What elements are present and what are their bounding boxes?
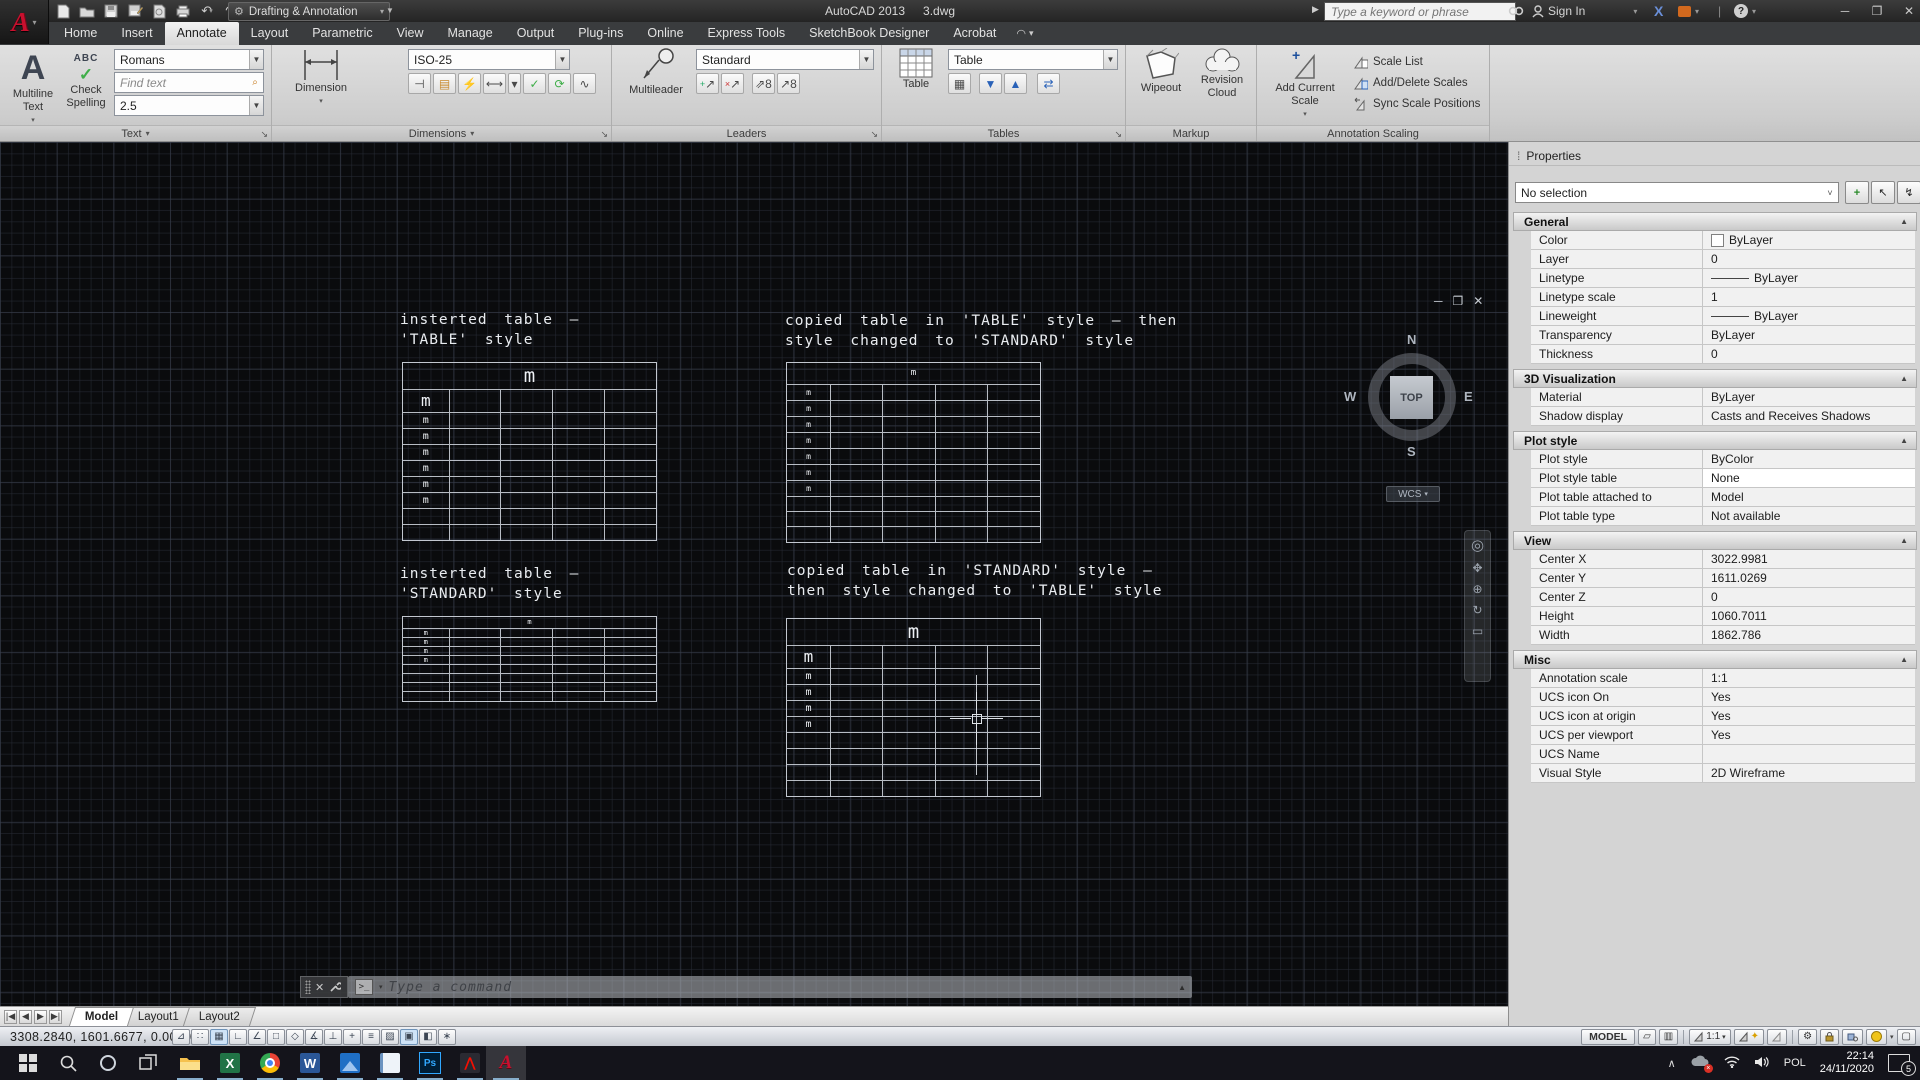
- property-row: Center Y1611.0269: [1531, 569, 1915, 588]
- object-snap-3d-toggle[interactable]: ◇: [286, 1029, 304, 1045]
- autoscale-button[interactable]: [1767, 1029, 1787, 1045]
- tab-online[interactable]: Online: [635, 22, 695, 45]
- layout-nav-buttons: |◀ ◀ ▶ ▶|: [0, 1010, 66, 1024]
- table-cell: [449, 674, 501, 682]
- add-leader-icon[interactable]: +↗: [696, 73, 719, 94]
- property-value[interactable]: ByLayer: [1703, 388, 1915, 406]
- dynamic-ucs-toggle[interactable]: ⊥: [324, 1029, 342, 1045]
- search-go-icon[interactable]: [1508, 0, 1524, 22]
- multiline-text-button[interactable]: A Multiline Text▾: [8, 48, 58, 127]
- object-snap-toggle[interactable]: □: [267, 1029, 285, 1045]
- command-line-grip[interactable]: ✕: [300, 976, 348, 998]
- property-value[interactable]: 0: [1703, 588, 1915, 606]
- property-row: Width1862.786: [1531, 626, 1915, 645]
- table-cell: [935, 481, 987, 496]
- workspace-gear-icon[interactable]: ⚙: [1798, 1029, 1817, 1045]
- clock[interactable]: 22:1424/11/2020: [1820, 1050, 1874, 1076]
- table-row: m: [787, 645, 1040, 668]
- table-annotation-text: insterted table –'TABLE' style: [400, 310, 579, 350]
- wipeout-button[interactable]: Wipeout: [1134, 48, 1188, 95]
- table-cell: [935, 385, 987, 400]
- text-style-combo[interactable]: Romans▼: [114, 49, 264, 70]
- prev-layout-icon[interactable]: ◀: [19, 1010, 32, 1024]
- property-value[interactable]: Not available: [1703, 507, 1915, 525]
- property-value[interactable]: ByLayer: [1703, 231, 1915, 249]
- property-value[interactable]: 1060.7011: [1703, 607, 1915, 625]
- property-value[interactable]: Casts and Receives Shadows: [1703, 407, 1915, 425]
- find-text-field[interactable]: Find text ⌕: [114, 72, 264, 93]
- table-cell: [449, 683, 501, 691]
- inserted-table-standard-style[interactable]: mmmmm: [402, 616, 657, 702]
- table-cell: [935, 717, 987, 732]
- section-header-general[interactable]: General▲: [1513, 212, 1917, 231]
- application-menu-button[interactable]: A▾: [0, 0, 49, 44]
- wipeout-label: Wipeout: [1141, 82, 1181, 95]
- viewcube-north[interactable]: N: [1407, 332, 1416, 347]
- update-dim-icon[interactable]: ⟳: [548, 73, 571, 94]
- collapse-icon[interactable]: ▲: [1900, 536, 1908, 545]
- excel-taskbar-icon[interactable]: X: [210, 1046, 250, 1080]
- table-cell: [882, 512, 934, 526]
- window-title: AutoCAD 20133.dwg: [700, 0, 1080, 22]
- svg-text:+: +: [1292, 48, 1300, 63]
- panel-title-markup[interactable]: Markup: [1126, 125, 1256, 141]
- panel-title-dimensions[interactable]: Dimensions▾↘: [272, 125, 611, 141]
- volume-icon[interactable]: [1754, 1056, 1770, 1071]
- wcs-menu[interactable]: WCS▾: [1386, 486, 1440, 502]
- table-tools: ▦ ▼ ▲ ⇄: [948, 73, 1060, 94]
- save-icon[interactable]: [102, 3, 120, 19]
- table-cell: [830, 465, 882, 480]
- photoshop-taskbar-icon[interactable]: Ps: [410, 1046, 450, 1080]
- table-cell: [882, 481, 934, 496]
- table-cell: [935, 781, 987, 796]
- tab-annotate[interactable]: Annotate: [165, 22, 239, 45]
- viewport-window-buttons: ─ ❐ ✕: [1434, 294, 1483, 308]
- dialog-launcher-icon[interactable]: ↘: [1114, 129, 1122, 140]
- help-icon[interactable]: ?▾: [1734, 0, 1756, 22]
- revision-cloud-icon: [1203, 48, 1241, 74]
- table-row: m: [403, 637, 656, 646]
- table-cell: [987, 385, 1039, 400]
- sign-in-button[interactable]: Sign In ▾: [1532, 0, 1637, 22]
- scale-list-button[interactable]: Scale List: [1353, 52, 1480, 72]
- panel-title-annotation-scaling[interactable]: Annotation Scaling: [1257, 125, 1489, 141]
- reassociate-icon[interactable]: ✓: [523, 73, 546, 94]
- table-row: [403, 691, 656, 701]
- multileader-button[interactable]: Multileader: [624, 48, 688, 97]
- viewcube-south[interactable]: S: [1407, 444, 1416, 459]
- search-taskbar-icon[interactable]: [48, 1046, 88, 1080]
- toggle-pickadd-button[interactable]: +: [1845, 181, 1869, 204]
- table-cell: [787, 527, 830, 542]
- chevron-down-icon[interactable]: ▾: [508, 73, 521, 94]
- property-label: UCS icon at origin: [1531, 707, 1703, 725]
- revision-cloud-button[interactable]: Revision Cloud: [1192, 48, 1252, 100]
- property-row: Height1060.7011: [1531, 607, 1915, 626]
- adjust-spacing-icon[interactable]: ▤: [433, 73, 456, 94]
- annotation-monitor-toggle[interactable]: ∗: [438, 1029, 456, 1045]
- property-value[interactable]: Yes: [1703, 707, 1915, 725]
- quick-properties-toggle[interactable]: ▣: [400, 1029, 418, 1045]
- table-style-value: Table: [949, 53, 1103, 67]
- mtext-icon: A: [21, 48, 46, 88]
- close-button[interactable]: ✕: [1902, 4, 1916, 18]
- tab-output[interactable]: Output: [505, 22, 567, 45]
- start-taskbar-icon[interactable]: [8, 1046, 48, 1080]
- property-value[interactable]: ByLayer: [1703, 307, 1915, 325]
- multileader-style-combo[interactable]: Standard▼: [696, 49, 874, 70]
- table-cell: [987, 465, 1039, 480]
- isolate-objects-icon[interactable]: [1866, 1029, 1887, 1045]
- ortho-mode-toggle[interactable]: ∟: [229, 1029, 247, 1045]
- tray-expand-icon[interactable]: ∧: [1668, 1057, 1676, 1070]
- property-value[interactable]: Yes: [1703, 726, 1915, 744]
- quick-dim-icon[interactable]: ⚡: [458, 73, 481, 94]
- command-placeholder: Type a command: [389, 980, 513, 995]
- panel-title-text[interactable]: Text▾↘: [0, 125, 271, 141]
- dynamic-input-toggle[interactable]: +: [343, 1029, 361, 1045]
- language-indicator[interactable]: POL: [1784, 1057, 1806, 1069]
- first-layout-icon[interactable]: |◀: [4, 1010, 17, 1024]
- zoom-icon[interactable]: ⊕: [1472, 582, 1482, 596]
- table-cell: [987, 497, 1039, 511]
- table-cell: [882, 433, 934, 448]
- acrobat-taskbar-icon[interactable]: ⋀: [450, 1046, 490, 1080]
- table-cell: [604, 692, 656, 701]
- dimension-button[interactable]: Dimension ▾: [288, 48, 354, 108]
- table-title-cell: m: [787, 619, 1040, 645]
- collapse-icon[interactable]: ▲: [1900, 374, 1908, 383]
- app-title: AutoCAD 2013: [825, 4, 905, 18]
- add-current-scale-label: Add Current Scale: [1265, 82, 1345, 108]
- chrome-taskbar-icon[interactable]: [250, 1046, 290, 1080]
- align-leaders-icon[interactable]: ⇗8: [752, 73, 775, 94]
- last-layout-icon[interactable]: ▶|: [49, 1010, 62, 1024]
- annotation-visibility-button[interactable]: ✦: [1734, 1029, 1764, 1045]
- table-row: m: [403, 476, 656, 492]
- jog-line-icon[interactable]: ∿: [573, 73, 596, 94]
- snap-mode-toggle[interactable]: ∷: [191, 1029, 209, 1045]
- tab-parametric[interactable]: Parametric: [300, 22, 384, 45]
- upload-table-icon[interactable]: ▲: [1004, 73, 1027, 94]
- table-cell: [604, 461, 656, 476]
- task-view-taskbar-icon[interactable]: [128, 1046, 168, 1080]
- table-cell: [830, 765, 882, 780]
- chevron-down-icon: ▾: [1303, 108, 1307, 121]
- remove-leader-icon[interactable]: ×↗: [721, 73, 744, 94]
- table-cell: [935, 765, 987, 780]
- sync-scale-positions-button[interactable]: Sync Scale Positions: [1353, 94, 1480, 114]
- viewport-minimize-icon[interactable]: ─: [1434, 294, 1443, 308]
- collect-leaders-icon[interactable]: ↗8: [777, 73, 800, 94]
- command-history-icon[interactable]: ▲: [1178, 983, 1186, 992]
- annotation-scale-icon: [1694, 1031, 1704, 1042]
- autocad-taskbar-icon[interactable]: A: [486, 1046, 526, 1080]
- table-cell: [935, 701, 987, 716]
- drawing-area[interactable]: ─ ❐ ✕ N W E S TOP WCS▾ ◎ ✥ ⊕ ↻ ▭ Y X: [0, 142, 1508, 1006]
- property-label: UCS Name: [1531, 745, 1703, 763]
- cortana-taskbar-icon[interactable]: [88, 1046, 128, 1080]
- new-file-icon[interactable]: [54, 3, 72, 19]
- hardware-accel-icon[interactable]: [1842, 1029, 1863, 1045]
- open-file-icon[interactable]: [78, 3, 96, 19]
- customize-wrench-icon[interactable]: [328, 981, 341, 994]
- selection-type-combo[interactable]: No selection ˅: [1515, 182, 1839, 203]
- property-value[interactable]: 3022.9981: [1703, 550, 1915, 568]
- showmotion-icon[interactable]: ▭: [1472, 624, 1483, 638]
- table-cell: [552, 683, 604, 691]
- table-cell: [830, 433, 882, 448]
- table-annotation-text: copied table in 'STANDARD' style –then s…: [787, 561, 1163, 601]
- transparency-toggle[interactable]: ▨: [381, 1029, 399, 1045]
- property-value[interactable]: 0: [1703, 345, 1915, 363]
- table-row: [787, 732, 1040, 748]
- undo-icon[interactable]: ↶▾: [198, 3, 216, 19]
- chevron-down-icon[interactable]: ▾: [379, 983, 383, 991]
- add-delete-scales-button[interactable]: Add/Delete Scales: [1353, 73, 1480, 93]
- separator: |: [1718, 0, 1721, 22]
- property-value[interactable]: None: [1703, 469, 1915, 487]
- table-cell: m: [787, 481, 830, 496]
- pan-icon[interactable]: ✥: [1472, 561, 1482, 575]
- drawing-quickview-icon[interactable]: ▥: [1659, 1029, 1678, 1045]
- table-cell: [830, 401, 882, 416]
- layout-tab-label: Layout2: [199, 1008, 240, 1026]
- table-cell-style-icon[interactable]: ▦: [948, 73, 971, 94]
- wifi-icon[interactable]: [1724, 1056, 1740, 1071]
- property-row: Annotation scale1:1: [1531, 669, 1915, 688]
- section-header-3d-visualization[interactable]: 3D Visualization▲: [1513, 369, 1917, 388]
- restore-button[interactable]: ❐: [1870, 4, 1884, 18]
- command-line[interactable]: ✕ >_ ▾ Type a command ▲: [300, 976, 1192, 998]
- section-header-plot-style[interactable]: Plot style▲: [1513, 431, 1917, 450]
- viewcube-east[interactable]: E: [1464, 389, 1473, 404]
- table-cell: [604, 656, 656, 664]
- photos-taskbar-icon[interactable]: [330, 1046, 370, 1080]
- ribbon-options-button[interactable]: ◠▾: [1008, 22, 1041, 45]
- close-icon[interactable]: ✕: [315, 981, 324, 994]
- tab-sketchbook-designer[interactable]: SketchBook Designer: [797, 22, 941, 45]
- tab-express-tools[interactable]: Express Tools: [696, 22, 798, 45]
- command-input[interactable]: >_ ▾ Type a command ▲: [348, 976, 1192, 998]
- notepad-taskbar-icon[interactable]: [370, 1046, 410, 1080]
- table-cell: [449, 656, 501, 664]
- autocad-window: ↶▾ ↷▾ ⚙ Drafting & Annotation ▾ ▼ AutoCA…: [0, 0, 1920, 1080]
- table-cell: [882, 669, 934, 684]
- toolbar-lock-icon[interactable]: [1820, 1029, 1839, 1045]
- table-annotation-text: insterted table –'STANDARD' style: [400, 564, 579, 604]
- property-row: LineweightByLayer: [1531, 307, 1915, 326]
- property-row: Linetype scale1: [1531, 288, 1915, 307]
- add-current-scale-button[interactable]: + Add Current Scale ▾: [1267, 48, 1343, 121]
- polar-tracking-toggle[interactable]: ∠: [248, 1029, 266, 1045]
- palette-grip-icon: ⁞: [1517, 149, 1520, 163]
- table-row: [403, 524, 656, 540]
- action-center-icon[interactable]: 5: [1888, 1054, 1910, 1072]
- object-snap-tracking-toggle[interactable]: ∡: [305, 1029, 323, 1045]
- find-text-placeholder: Find text: [115, 76, 247, 90]
- qat-customize-icon[interactable]: ▼: [386, 6, 394, 15]
- table-title-cell: m: [403, 363, 656, 389]
- table-cell: [830, 527, 882, 542]
- property-value[interactable]: Model: [1703, 488, 1915, 506]
- property-value[interactable]: Yes: [1703, 688, 1915, 706]
- dialog-launcher-icon[interactable]: ↘: [260, 129, 268, 140]
- property-value[interactable]: ByColor: [1703, 450, 1915, 468]
- panel-title-leaders[interactable]: Leaders↘: [612, 125, 881, 141]
- table-cell: [882, 781, 934, 796]
- tab-view[interactable]: View: [385, 22, 436, 45]
- table-cell: [604, 390, 656, 412]
- table-cell: m: [787, 449, 830, 464]
- table-cell: [604, 647, 656, 655]
- infer-constraints-toggle[interactable]: ⊿: [172, 1029, 190, 1045]
- collapse-icon[interactable]: ▲: [1900, 655, 1908, 664]
- model-space-button[interactable]: MODEL: [1581, 1029, 1635, 1045]
- save-as-icon[interactable]: [126, 3, 144, 19]
- tab-manage[interactable]: Manage: [436, 22, 505, 45]
- copied-table-table-style[interactable]: mmmmmm: [786, 618, 1041, 797]
- inserted-table-table-style[interactable]: mmmmmmmm: [402, 362, 657, 541]
- table-row: m: [787, 384, 1040, 400]
- viewport-close-icon[interactable]: ✕: [1473, 294, 1483, 308]
- dimension-style-combo[interactable]: ISO-25▼: [408, 49, 570, 70]
- layout-tab-model[interactable]: Model: [69, 1007, 134, 1026]
- navigation-wheel-icon[interactable]: ◎: [1471, 536, 1484, 554]
- layout-quickview-icon[interactable]: ▱: [1638, 1029, 1656, 1045]
- ribbon-tabs: HomeInsertAnnotateLayoutParametricViewMa…: [52, 22, 1008, 45]
- table-row: [787, 764, 1040, 780]
- minimize-button[interactable]: ─: [1838, 4, 1852, 18]
- property-row: Visual Style2D Wireframe: [1531, 764, 1915, 783]
- section-header-misc[interactable]: Misc▲: [1513, 650, 1917, 669]
- table-cell: m: [787, 701, 830, 716]
- annotation-scale-button[interactable]: 1:1▾: [1689, 1029, 1730, 1045]
- table-cell: [830, 685, 882, 700]
- table-button[interactable]: Table: [892, 48, 940, 91]
- property-label: Annotation scale: [1531, 669, 1703, 687]
- layout-tab-layout2[interactable]: Layout2: [183, 1007, 256, 1026]
- table-cell: [500, 665, 552, 673]
- exchange-apps-icon[interactable]: X: [1654, 0, 1663, 22]
- table-cell: [987, 449, 1039, 464]
- property-label: Material: [1531, 388, 1703, 406]
- property-value[interactable]: ByLayer: [1703, 326, 1915, 344]
- table-cell: [935, 497, 987, 511]
- tab-home[interactable]: Home: [52, 22, 109, 45]
- property-label: Plot table attached to: [1531, 488, 1703, 506]
- property-label: Width: [1531, 626, 1703, 644]
- property-value[interactable]: 0: [1703, 250, 1915, 268]
- file-explorer-taskbar-icon[interactable]: [170, 1046, 210, 1080]
- table-cell: [500, 509, 552, 524]
- color-swatch: [1711, 234, 1724, 247]
- export-table-down-icon[interactable]: ▼: [979, 73, 1002, 94]
- viewcube-top-face[interactable]: TOP: [1390, 376, 1433, 419]
- panel-title-tables[interactable]: Tables↘: [882, 125, 1125, 141]
- property-value[interactable]: 1611.0269: [1703, 569, 1915, 587]
- quick-select-button[interactable]: ↯: [1897, 181, 1920, 204]
- word-taskbar-icon[interactable]: W: [290, 1046, 330, 1080]
- dialog-launcher-icon[interactable]: ↘: [600, 129, 608, 140]
- table-cell: [787, 733, 830, 748]
- plot-preview-icon[interactable]: [150, 3, 168, 19]
- next-layout-icon[interactable]: ▶: [34, 1010, 47, 1024]
- viewcube-west[interactable]: W: [1344, 389, 1356, 404]
- table-cell: m: [787, 417, 830, 432]
- table-cell: [935, 449, 987, 464]
- chevron-down-icon: ˅: [1822, 188, 1838, 198]
- property-value[interactable]: 1862.786: [1703, 626, 1915, 644]
- viewport-restore-icon[interactable]: ❐: [1453, 294, 1464, 308]
- text-height-combo[interactable]: 2.5▼: [114, 95, 264, 116]
- selection-cycling-toggle[interactable]: ◧: [419, 1029, 437, 1045]
- property-value[interactable]: 1: [1703, 288, 1915, 306]
- section-body-3d-visualization: MaterialByLayerShadow displayCasts and R…: [1531, 388, 1915, 426]
- property-value[interactable]: ByLayer: [1703, 269, 1915, 287]
- property-value[interactable]: 2D Wireframe: [1703, 764, 1915, 782]
- table-cell: [552, 461, 604, 476]
- onedrive-icon[interactable]: ×: [1690, 1055, 1710, 1071]
- chevron-down-icon[interactable]: ▾: [1890, 1033, 1894, 1041]
- table-row: m: [787, 416, 1040, 432]
- break-dimension-icon[interactable]: ⊣: [408, 73, 431, 94]
- continue-dim-icon[interactable]: ⟷: [483, 73, 506, 94]
- collapse-icon[interactable]: ▲: [1900, 217, 1908, 226]
- lineweight-toggle[interactable]: ≡: [362, 1029, 380, 1045]
- table-cell: [449, 429, 501, 444]
- palette-title-bar[interactable]: ⁞ Properties: [1509, 146, 1920, 166]
- autodesk360-icon[interactable]: ▾: [1678, 0, 1699, 22]
- select-objects-button[interactable]: ↖: [1871, 181, 1895, 204]
- orbit-icon[interactable]: ↻: [1472, 603, 1482, 617]
- tab-layout[interactable]: Layout: [239, 22, 301, 45]
- property-value[interactable]: 1:1: [1703, 669, 1915, 687]
- infocenter-search-input[interactable]: [1324, 2, 1516, 21]
- table-row: m: [787, 448, 1040, 464]
- table-cell: [882, 385, 934, 400]
- infocenter-collapse-icon[interactable]: ▶: [1312, 4, 1319, 15]
- grid-display-toggle[interactable]: ▦: [210, 1029, 228, 1045]
- property-label: Plot style: [1531, 450, 1703, 468]
- table-cell: [449, 461, 501, 476]
- property-value[interactable]: [1703, 745, 1915, 763]
- table-style-combo[interactable]: Table▼: [948, 49, 1118, 70]
- data-link-icon[interactable]: ⇄: [1037, 73, 1060, 94]
- copied-table-standard-style[interactable]: mmmmmmmm: [786, 362, 1041, 543]
- print-icon[interactable]: [174, 3, 192, 19]
- table-cell: [882, 685, 934, 700]
- workspace-switcher[interactable]: ⚙ Drafting & Annotation ▾: [228, 2, 390, 21]
- table-cell: m: [787, 669, 830, 684]
- check-spelling-button[interactable]: ABC ✓ Check Spelling: [60, 48, 112, 110]
- table-cell: [604, 674, 656, 682]
- clean-screen-button[interactable]: ▢: [1897, 1029, 1916, 1045]
- status-toggles: ⊿∷▦∟∠□◇∡⊥+≡▨▣◧∗: [172, 1029, 456, 1045]
- sign-in-label: Sign In: [1548, 4, 1585, 18]
- section-header-view[interactable]: View▲: [1513, 531, 1917, 550]
- tab-insert[interactable]: Insert: [109, 22, 164, 45]
- tab-plug-ins[interactable]: Plug-ins: [566, 22, 635, 45]
- table-cell: [830, 701, 882, 716]
- collapse-icon[interactable]: ▲: [1900, 436, 1908, 445]
- table-cell: [830, 669, 882, 684]
- table-cell: [500, 525, 552, 540]
- drag-handle-icon[interactable]: [305, 980, 311, 994]
- tab-acrobat[interactable]: Acrobat: [941, 22, 1008, 45]
- dialog-launcher-icon[interactable]: ↘: [870, 129, 878, 140]
